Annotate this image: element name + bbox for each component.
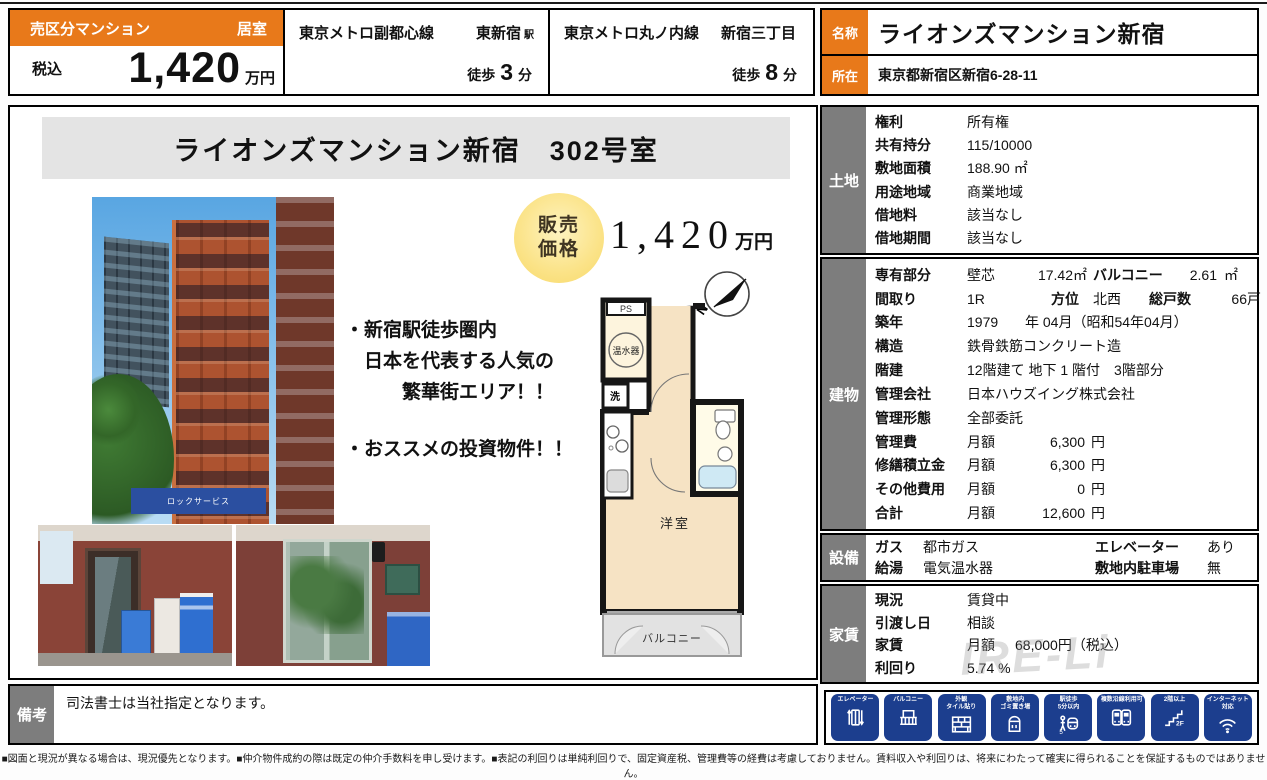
photo-lamp [372,542,386,562]
entrance-photo-2 [236,525,430,666]
table-row: 共有持分115/10000 [875,135,1251,155]
row-label: 構造 [875,336,967,356]
remarks-text: 司法書士は当社指定となります。 [54,686,286,743]
table-row: 管理形態全部委託 [875,408,1261,428]
row-label: 間取り [875,289,967,309]
floor-plan: N PS 温水器 洗 洋室 [587,260,827,668]
section-equipment: 設備 ガス都市ガスエレベーターあり給湯電気温水器敷地内駐車場無 [820,533,1259,582]
cell: 所有権 [967,112,1009,132]
cell: 賃貸中 [967,590,1009,610]
elevator-icon [843,705,868,730]
badge-line-1: 販売 [538,214,580,238]
row-label: 権利 [875,112,967,132]
name-label: 名称 [822,10,868,54]
photo-name-plaque [385,564,420,595]
table-row: ガス都市ガスエレベーターあり [875,537,1251,557]
walk5-icon: 5 [1056,712,1081,737]
table-row: 築年1979年 04月（昭和54年04月） [875,312,1261,332]
cell: 1R [967,291,1051,307]
svg-text:洗: 洗 [610,390,620,403]
wifi-feature-tile: インターネット対応 [1204,694,1252,741]
trash-feature-tile: 敷地内ゴミ置き場 [991,694,1039,741]
footer-disclaimer: ■図面と現況が異なる場合は、現況優先となります。■仲介物件成約の際は既定の仲介手… [0,750,1267,780]
row-label: 利回り [875,658,967,678]
cell: 年 04月（昭和54年04月） [1025,312,1188,332]
tile-feature-tile: 外観タイル貼り [938,694,986,741]
remarks-label: 備考 [10,686,54,743]
svg-text:バルコニー: バルコニー [642,632,702,645]
feature-label: 2階以上 [1164,696,1185,703]
tax-included-label: 税込 [32,58,62,79]
main-panel: ライオンズマンション新宿 302号室 ロックサービス 販売 価格 1,420 万… [8,105,818,680]
cell: エレベーター [1095,537,1207,557]
cell: 5.74 % [967,660,1011,676]
photo-subject-building [172,220,269,524]
property-type-label: 売区分マンション [30,18,150,39]
feature-icons: エレベーターバルコニー外観タイル貼り敷地内ゴミ置き場駅徒歩5分以内5複数沿線利用… [824,690,1259,745]
cell: 該当なし [967,205,1023,225]
badge-line-2: 価格 [538,238,580,262]
row-label: 用途地域 [875,182,967,202]
walk-time-1: 徒歩3分 [467,59,532,86]
row-label: ガス [875,537,923,557]
walk-minutes-2: 8 [760,59,783,85]
cell: バルコニー [1087,265,1161,285]
row-label: その他費用 [875,479,967,499]
page-title: ライオンズマンション新宿 302号室 [42,117,790,179]
room-type-label: 居室 [237,18,267,39]
cell: 商業地域 [967,182,1023,202]
table-row: 現況賃貸中 [875,590,1251,610]
svg-text:PS: PS [620,304,632,314]
cell: 月額 [967,503,1023,523]
balcony-icon [896,705,921,730]
feature-label: エレベーター [837,696,873,703]
stairs-feature-tile: 2階以上2F [1151,694,1199,741]
photo-blue-bins [387,612,430,666]
cell: 月額 [967,479,1023,499]
price-value: 1,420 [128,47,241,90]
cell: 115/10000 [967,137,1032,153]
row-label: 引渡し日 [875,613,967,633]
cell: 66戸 [1227,289,1261,309]
svg-text:5: 5 [1059,729,1063,736]
cell: 月額 [967,432,1023,452]
cell: 2.61 [1161,267,1217,283]
section-building-label: 建物 [822,259,866,529]
row-label: 家賃 [875,635,967,655]
section-equipment-rows: ガス都市ガスエレベーターあり給湯電気温水器敷地内駐車場無 [866,535,1257,580]
row-label: 借地料 [875,205,967,225]
station-box-1: 東京メトロ副都心線 東新宿駅 徒歩3分 [285,10,548,94]
cell: 月額 [967,635,1015,655]
header-name-box: 名称 ライオンズマンション新宿 所在 東京都新宿区新宿6-28-11 [820,8,1259,96]
cell: 無 [1207,558,1221,578]
cell: あり [1207,537,1235,557]
section-rent: 家賃 現況賃貸中引渡し日相談家賃月額68,000円（税込）利回り5.74 % [820,584,1259,684]
table-row: 借地料該当なし [875,205,1251,225]
table-row: 敷地面積188.90 ㎡ [875,158,1251,178]
feature-label: インターネット対応 [1207,697,1249,711]
line-name-2: 東京メトロ丸ノ内線 [564,22,699,43]
entrance-photo-1 [38,525,232,666]
row-label: 借地期間 [875,228,967,248]
table-row: 階建12階建て 地下 1 階付 3階部分 [875,360,1261,380]
photo-blue-cart [121,610,150,657]
cell: 円 [1085,455,1111,475]
table-row: 管理費月額6,300円 [875,432,1261,452]
table-row: 用途地域商業地域 [875,182,1251,202]
section-land: 土地 権利所有権共有持分115/10000敷地面積188.90 ㎡用途地域商業地… [820,105,1259,255]
price-line: 税込 1,420 万円 [10,46,283,94]
row-label: 階建 [875,360,967,380]
table-row: 管理会社日本ハウズイング株式会社 [875,384,1261,404]
row-label: 管理形態 [875,408,967,428]
property-address: 東京都新宿区新宿6-28-11 [868,56,1037,94]
row-label: 現況 [875,590,967,610]
cell: 北西 [1093,289,1149,309]
page-top-rule [0,2,1267,4]
row-label: 管理会社 [875,384,967,404]
elevator-feature-tile: エレベーター [831,694,879,741]
feature-label: 駅徒歩5分以内 [1057,697,1078,711]
cell: 68,000円（税込） [1015,635,1128,655]
table-row: 専有部分壁芯17.42㎡バルコニー2.61㎡ [875,265,1261,285]
svg-text:2F: 2F [1176,720,1184,727]
cell: 総戸数 [1149,289,1227,309]
feature-label: 複数沿線利用可 [1100,696,1142,703]
feature-label: バルコニー [893,696,923,703]
cell: 全部委託 [967,408,1023,428]
table-row: 合計月額12,600円 [875,503,1261,523]
line-name-1: 東京メトロ副都心線 [299,22,434,43]
section-land-label: 土地 [822,107,866,253]
trains-feature-tile: 複数沿線利用可 [1097,694,1145,741]
row-label: 修繕積立金 [875,455,967,475]
stairs-icon: 2F [1162,705,1187,730]
section-rent-rows: 現況賃貸中引渡し日相談家賃月額68,000円（税込）利回り5.74 % [866,586,1257,682]
section-equipment-label: 設備 [822,535,866,580]
table-row: その他費用月額0円 [875,479,1261,499]
section-building: 建物 専有部分壁芯17.42㎡バルコニー2.61㎡間取り1R方位北西総戸数66戸… [820,257,1259,531]
cell: 鉄骨鉄筋コンクリート造 [967,336,1121,356]
station-box-2: 東京メトロ丸ノ内線 新宿三丁目 徒歩8分 [548,10,813,94]
price-box: 売区分マンション 居室 税込 1,420 万円 [10,10,285,94]
table-row: 家賃月額68,000円（税込） [875,635,1251,655]
price-unit: 万円 [245,67,275,88]
name-row: 名称 ライオンズマンション新宿 [822,10,1257,56]
cell: 相談 [967,613,995,633]
feature-label: 敷地内ゴミ置き場 [1000,697,1030,711]
cell: 電気温水器 [923,558,1095,578]
cell: 敷地内駐車場 [1095,558,1207,578]
station-name-1: 東新宿駅 [476,22,534,43]
photo-ground [38,653,232,666]
row-label: 共有持分 [875,135,967,155]
station-name-2: 新宿三丁目 [721,22,799,43]
table-row: 構造鉄骨鉄筋コンクリート造 [875,336,1261,356]
cell: 6,300 [1023,434,1085,450]
header-price-station-box: 売区分マンション 居室 税込 1,420 万円 東京メトロ副都心線 東新宿駅 徒… [8,8,815,96]
svg-text:洋室: 洋室 [660,516,690,531]
row-label: 敷地面積 [875,158,967,178]
photo-shop-sign: ロックサービス [131,488,267,514]
cell: 方位 [1051,289,1093,309]
row-label: 管理費 [875,432,967,452]
address-label: 所在 [822,56,868,94]
photo-adjacent-building [276,197,334,524]
cell: ㎡ [1217,265,1245,285]
cell: 日本ハウズイング株式会社 [967,384,1135,404]
balcony-feature-tile: バルコニー [884,694,932,741]
row-label: 築年 [875,312,967,332]
row-label: 専有部分 [875,265,967,285]
feature-label: 外観タイル貼り [947,697,977,711]
table-row: 権利所有権 [875,112,1251,132]
cell: 都市ガス [923,537,1095,557]
cell: 月額 [967,455,1023,475]
remarks-box: 備考 司法書士は当社指定となります。 [8,684,818,745]
address-row: 所在 東京都新宿区新宿6-28-11 [822,56,1257,94]
sale-price-unit: 万円 [735,227,773,254]
trash-icon [1002,712,1027,737]
section-rent-label: 家賃 [822,586,866,682]
cell: 円 [1085,503,1111,523]
tile-icon [949,712,974,737]
photo-vending-blue [180,593,213,656]
table-row: 給湯電気温水器敷地内駐車場無 [875,558,1251,578]
row-label: 合計 [875,503,967,523]
section-building-rows: 専有部分壁芯17.42㎡バルコニー2.61㎡間取り1R方位北西総戸数66戸築年1… [866,259,1267,529]
cell: 17.42㎡ [1025,265,1087,285]
walk-minutes-1: 3 [495,59,518,85]
sale-price-number: 1,420 [610,211,735,258]
cell: 円 [1085,432,1111,452]
compass-icon: N [693,272,749,318]
cell: 6,300 [1023,457,1085,473]
property-type-bar: 売区分マンション 居室 [10,10,283,46]
building-photo: ロックサービス [92,197,334,524]
section-land-rows: 権利所有権共有持分115/10000敷地面積188.90 ㎡用途地域商業地域借地… [866,107,1257,253]
sale-price-text: 1,420 万円 [610,211,773,258]
walk5-feature-tile: 駅徒歩5分以内5 [1044,694,1092,741]
property-name: ライオンズマンション新宿 [868,10,1166,54]
photo-side-sign [40,531,73,585]
table-row: 利回り5.74 % [875,658,1251,678]
cell: 壁芯 [967,265,1025,285]
cell: 0 [1023,481,1085,497]
photo-greenery [290,556,364,634]
walk-time-2: 徒歩8分 [732,59,797,86]
table-row: 間取り1R方位北西総戸数66戸 [875,289,1261,309]
station-suffix-1: 駅 [524,30,534,41]
cell: 12階建て 地下 1 階付 3階部分 [967,360,1164,380]
row-label: 給湯 [875,558,923,578]
table-row: 修繕積立金月額6,300円 [875,455,1261,475]
cell: 1979 [967,314,1025,330]
table-row: 借地期間該当なし [875,228,1251,248]
cell: 12,600 [1023,505,1085,521]
cell: 円 [1085,479,1111,499]
svg-text:温水器: 温水器 [612,345,639,356]
table-row: 引渡し日相談 [875,613,1251,633]
cell: 該当なし [967,228,1023,248]
trains-icon [1109,705,1134,730]
cell: 188.90 ㎡ [967,158,1028,178]
wifi-icon [1215,712,1240,737]
photo-vending-white [154,598,179,656]
